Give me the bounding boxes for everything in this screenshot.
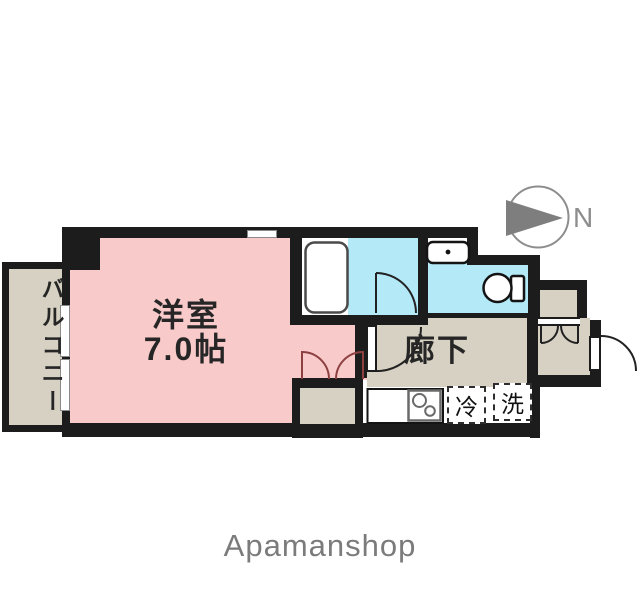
compass [506, 187, 569, 248]
main-room-name-label: 洋室 [96, 299, 276, 331]
wash-basin [427, 242, 469, 263]
bathroom-floor [348, 238, 418, 315]
refrigerator-label: 冷 [455, 388, 478, 422]
floorplan-image: 冷 洗 洋室 7.0帖 廊下 バルコニー N Apamanshop [0, 0, 640, 608]
balcony-label: バルコニー [9, 272, 62, 422]
entry-closet-door-track [538, 317, 580, 326]
entrance-door-leaf [589, 336, 601, 371]
entry-closet-floor [540, 290, 577, 318]
balcony-wall-bottom [2, 425, 68, 432]
top-wall-window [247, 230, 277, 238]
washer-label: 洗 [501, 385, 524, 419]
main-closet-floor [300, 388, 355, 424]
entrance-floor [538, 318, 590, 378]
main-room-size-label: 7.0帖 [96, 333, 276, 365]
wall-bath-washroom [418, 233, 428, 318]
wall-entry-right-upper [590, 320, 601, 337]
balcony-wall-top [2, 262, 68, 269]
bathtub [306, 243, 348, 313]
washroom-floor [428, 262, 528, 313]
corridor-label: 廊下 [372, 335, 502, 366]
compass-needle-icon [506, 200, 563, 236]
corridor-floor-upper [428, 318, 527, 325]
watermark-text: Apamanshop [160, 528, 480, 564]
wall-entry-closet-right [577, 280, 587, 318]
refrigerator-box: 冷 [447, 386, 486, 424]
compass-north-label: N [573, 202, 593, 234]
entrance-door-arc [601, 336, 636, 371]
balcony-wall-left [2, 262, 9, 432]
wall-entrance-bottom [530, 375, 601, 387]
wall-washroom-bottom [428, 313, 540, 318]
wall-bath-left [290, 233, 302, 325]
washer-box: 洗 [493, 383, 532, 421]
